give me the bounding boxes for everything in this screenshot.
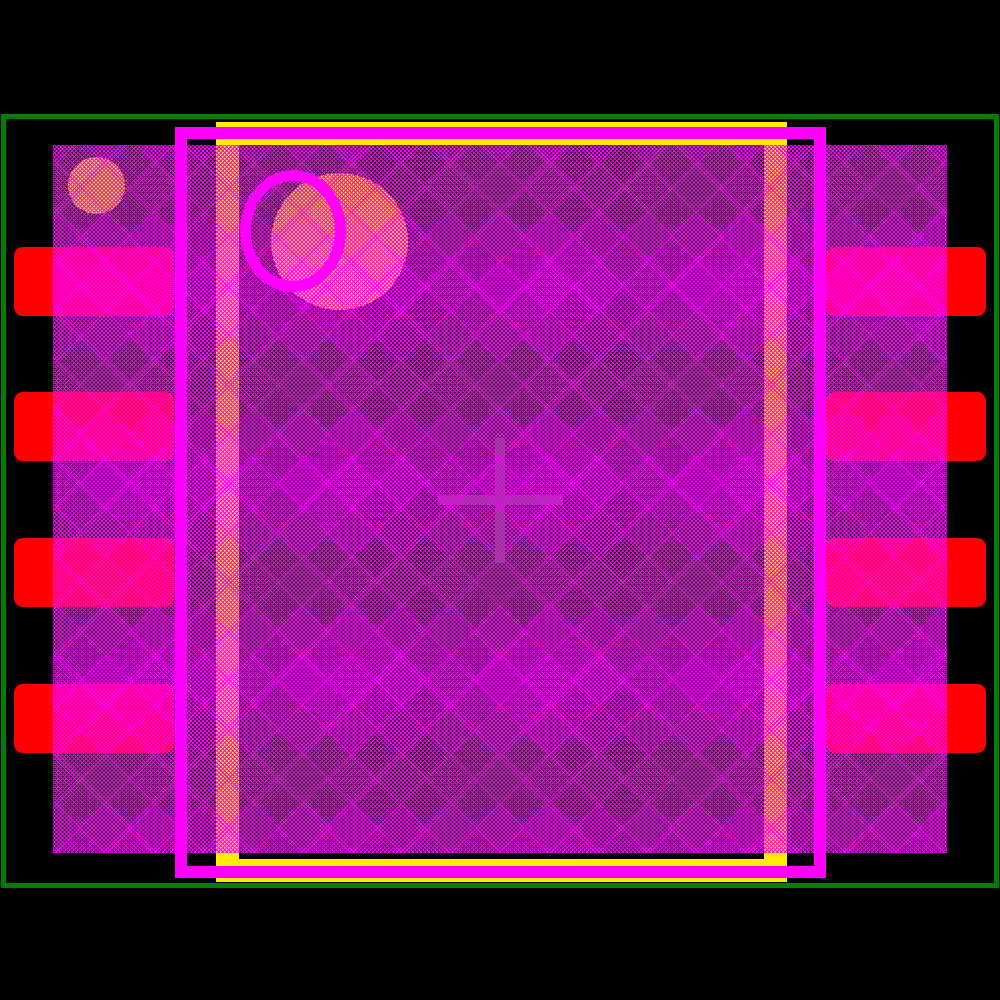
- pad-right-2: [826, 392, 986, 461]
- footprint-canvas: [0, 0, 1000, 1000]
- pad-right-3: [826, 538, 986, 607]
- fab-pin1-dot-small-icon: [68, 157, 125, 214]
- pad-right-1: [826, 247, 986, 316]
- pad-left-2: [14, 392, 174, 461]
- pad-right-4: [826, 684, 986, 753]
- pad-left-3: [14, 538, 174, 607]
- pad-left-4: [14, 684, 174, 753]
- pad-left-1: [14, 247, 174, 316]
- silkscreen-pin1-circle-icon: [240, 170, 346, 292]
